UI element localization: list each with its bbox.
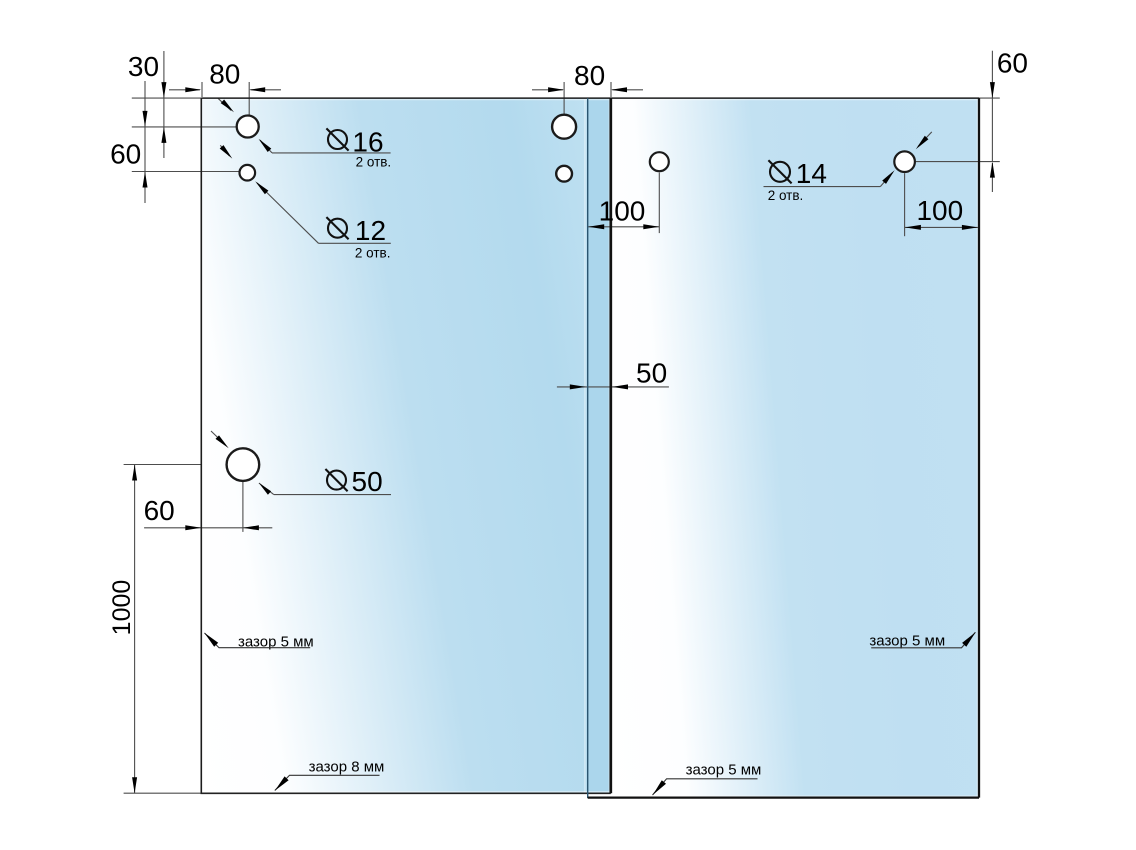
svg-text:2 отв.: 2 отв. (356, 154, 392, 169)
svg-text:2 отв.: 2 отв. (355, 245, 391, 260)
svg-text:14: 14 (796, 158, 827, 189)
svg-text:60: 60 (144, 495, 175, 526)
svg-text:1000: 1000 (108, 580, 136, 636)
svg-text:30: 30 (128, 51, 159, 82)
svg-text:100: 100 (599, 196, 646, 227)
svg-text:зазор 5 мм: зазор 5 мм (869, 632, 945, 649)
svg-text:50: 50 (636, 358, 667, 389)
svg-text:2 отв.: 2 отв. (768, 188, 804, 203)
svg-text:100: 100 (916, 195, 963, 226)
svg-text:60: 60 (110, 139, 141, 170)
svg-text:зазор 5 мм: зазор 5 мм (686, 761, 762, 778)
svg-text:60: 60 (997, 48, 1028, 79)
svg-text:зазор 8 мм: зазор 8 мм (309, 758, 385, 775)
svg-text:12: 12 (355, 215, 386, 246)
svg-text:50: 50 (352, 466, 383, 497)
svg-text:16: 16 (352, 127, 383, 158)
svg-text:80: 80 (209, 59, 240, 90)
svg-text:80: 80 (574, 60, 605, 91)
